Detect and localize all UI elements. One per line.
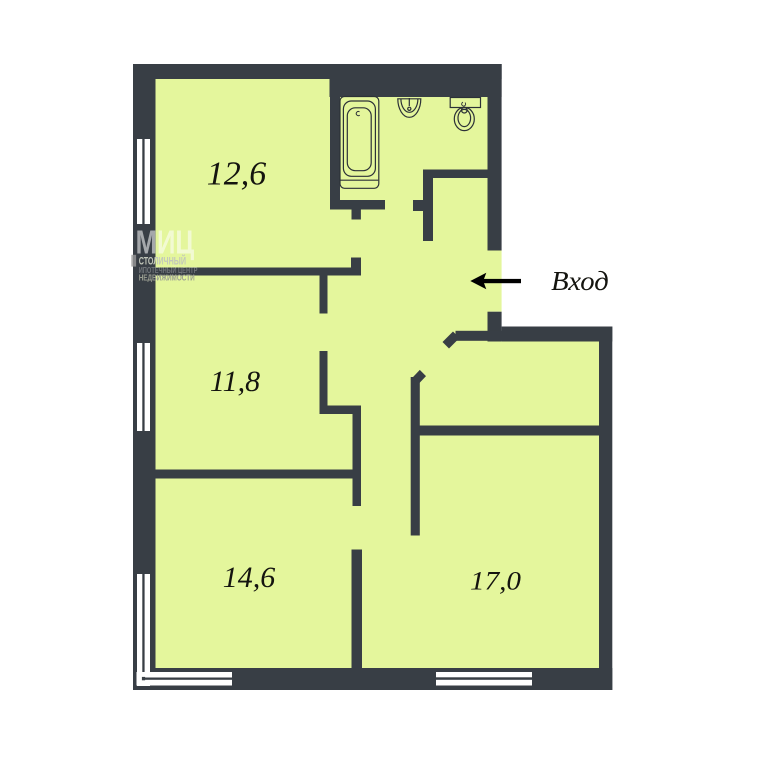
svg-text:12,6: 12,6: [207, 156, 267, 193]
svg-text:11,8: 11,8: [210, 365, 260, 398]
svg-text:НЕДВИЖИМОСТИ: НЕДВИЖИМОСТИ: [139, 273, 195, 282]
svg-text:17,0: 17,0: [470, 566, 521, 596]
svg-text:Вход: Вход: [551, 265, 609, 296]
svg-text:14,6: 14,6: [223, 561, 276, 594]
